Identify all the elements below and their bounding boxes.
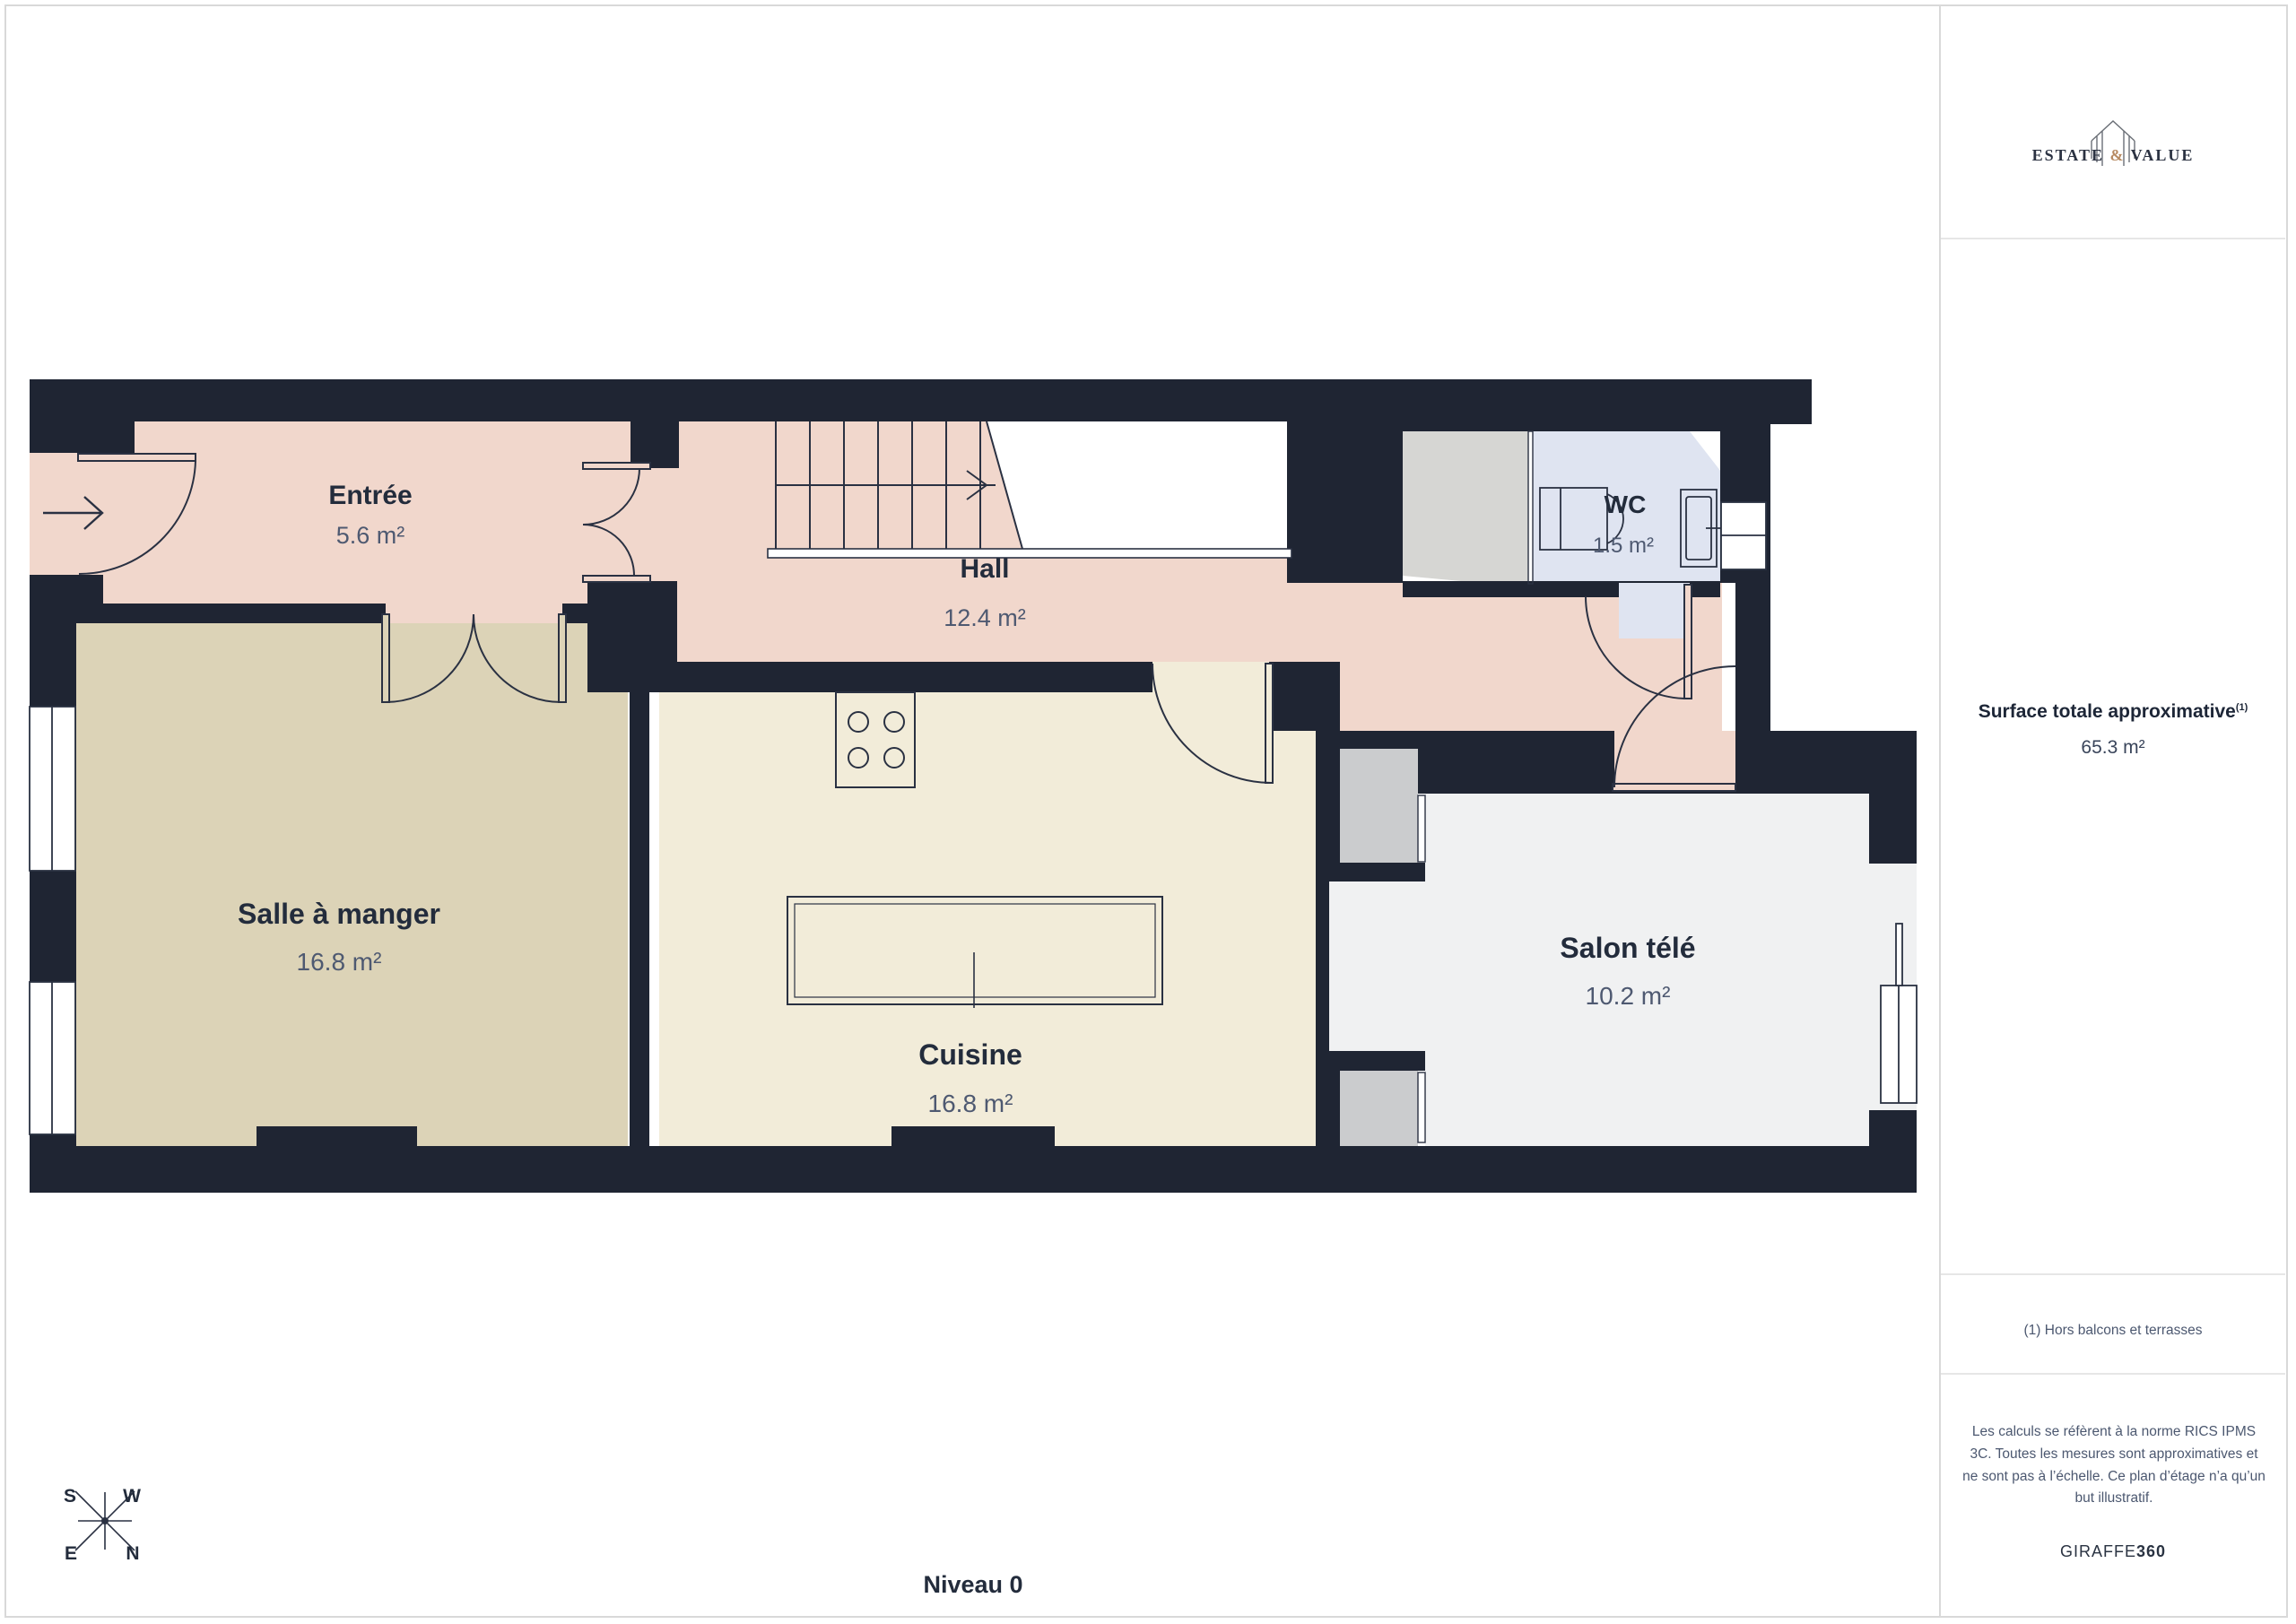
surface-superscript: (1) [2236,702,2248,713]
vendor-logo: GIRAFFE360 [1941,1542,2285,1561]
estate-value-house-icon: ESTATE & VALUE [2014,73,2212,171]
disclaimer-text: Les calculs se réfèrent à la norme RICS … [1962,1421,2266,1510]
salon-door-gap [1614,731,1735,787]
svg-text:10.2 m²: 10.2 m² [1586,982,1671,1010]
svg-text:Cuisine: Cuisine [918,1038,1022,1071]
brand-name-right: VALUE [2131,146,2195,164]
compass-south: S [64,1486,76,1507]
kitchen-island [787,897,1162,1008]
svg-text:Salle à manger: Salle à manger [238,898,440,930]
window-wc [1721,502,1766,569]
svg-text:12.4 m²: 12.4 m² [944,604,1026,631]
floorplan-page: Entrée 5.6 m² Hall 12.4 m² WC 1.5 m² Sal… [0,0,2296,1624]
svg-text:Hall: Hall [960,554,1009,584]
window-salle-upper [30,707,75,871]
sidebar-divider [1941,1373,2285,1375]
cuisine-door-gap [1152,662,1269,692]
surface-total-title: Surface totale approximative(1) [1941,701,2285,723]
svg-text:WC: WC [1605,491,1647,518]
compass-north: N [126,1543,139,1564]
sidebar-divider [1941,1273,2285,1275]
svg-text:Entrée: Entrée [328,481,412,510]
compass-center-dot [101,1517,109,1524]
sidebar: ESTATE & VALUE Surface totale approximat… [1939,6,2285,1618]
footnote: (1) Hors balcons et terrasses [1941,1323,2285,1339]
window-salle-lower [30,982,75,1134]
glass-strip-upper [1418,795,1425,862]
svg-text:16.8 m²: 16.8 m² [297,948,382,976]
surface-total-value: 65.3 m² [1941,737,2285,759]
brand-name-left: ESTATE [2032,146,2104,164]
svg-text:ESTATE & VALUE: ESTATE & VALUE [2032,146,2195,164]
wc-door-gap [1619,583,1690,623]
svg-text:Salon télé: Salon télé [1560,932,1695,964]
svg-text:1.5 m²: 1.5 m² [1593,534,1654,558]
brand-logo: ESTATE & VALUE [1941,6,2285,239]
stair-void [987,421,1287,549]
storage-partition [1528,431,1533,584]
stove [836,692,915,787]
compass-west: W [123,1486,141,1507]
storage-area [1403,431,1528,587]
svg-text:16.8 m²: 16.8 m² [928,1090,1013,1117]
stair-edge-rail [768,549,1291,558]
svg-text:5.6 m²: 5.6 m² [336,522,405,549]
vendor-name: GIRAFFE [2060,1542,2136,1560]
brand-ampersand: & [2109,146,2125,164]
compass-east: E [65,1543,77,1564]
room-salle-a-manger-floor [76,623,628,1146]
glass-strip-lower [1418,1073,1425,1142]
vendor-suffix: 360 [2136,1542,2166,1560]
surface-total-block: Surface totale approximative(1) 65.3 m² [1941,701,2285,759]
compass-rose: S W E N [64,1486,141,1564]
level-label: Niveau 0 [923,1571,1022,1598]
